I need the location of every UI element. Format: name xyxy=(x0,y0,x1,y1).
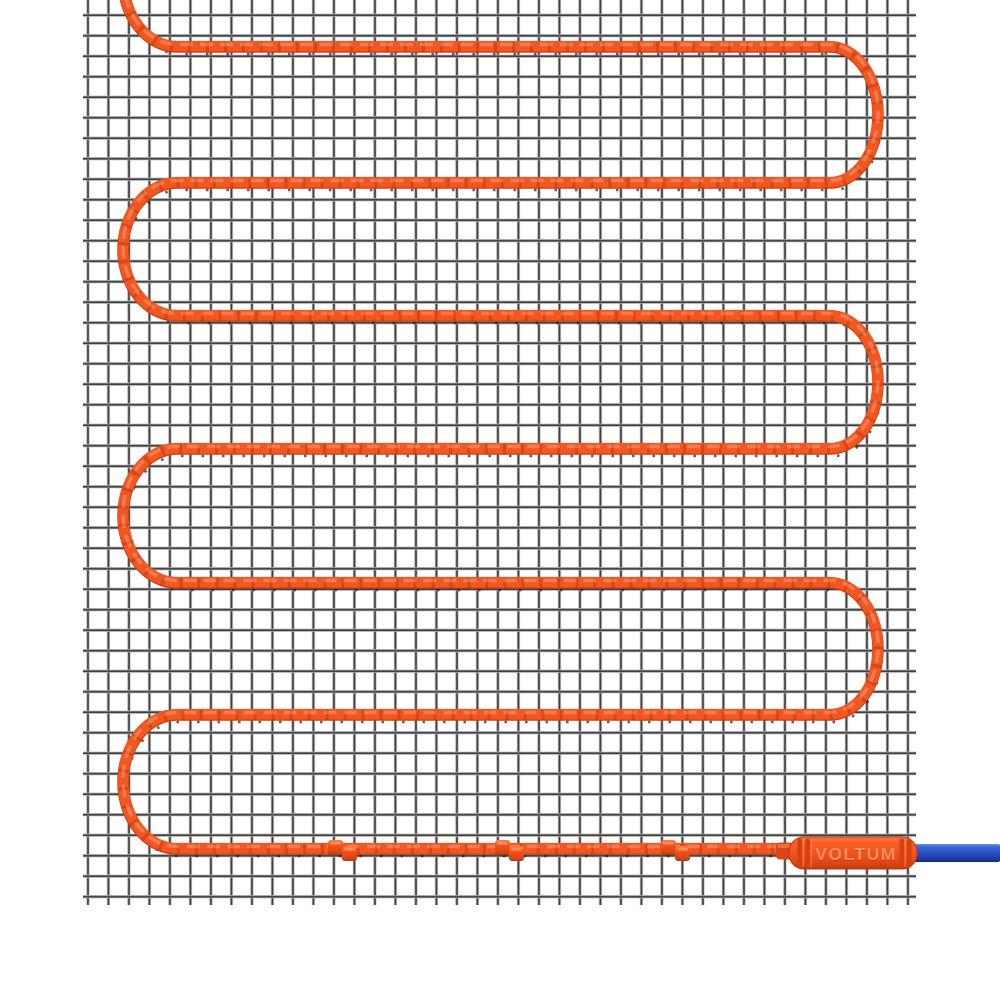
connector-label: VOLTUM xyxy=(815,844,897,864)
connector: VOLTUM VOLTUM xyxy=(776,837,917,869)
cold-lead-cable xyxy=(910,844,1000,862)
heating-mat-illustration: VOLTUM VOLTUM xyxy=(0,0,1000,1000)
mesh-horizontal-wires xyxy=(83,13,916,899)
heating-mat-canvas: VOLTUM VOLTUM xyxy=(0,0,1000,1000)
